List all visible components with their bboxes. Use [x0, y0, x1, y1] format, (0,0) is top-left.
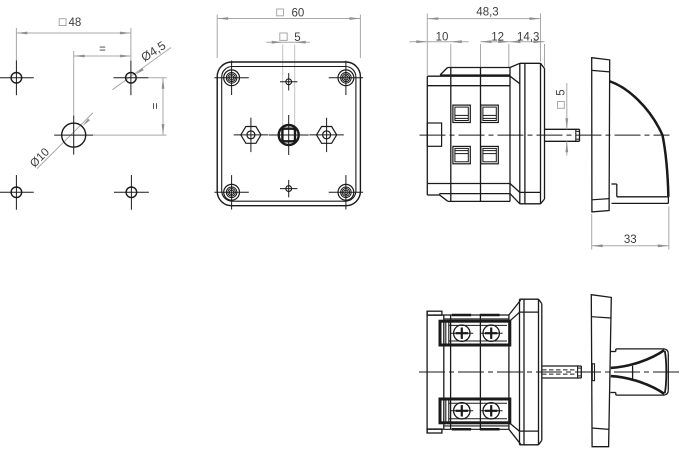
svg-text:=: = [99, 44, 106, 56]
svg-text:=: = [150, 102, 162, 109]
svg-text:5: 5 [555, 89, 567, 95]
svg-text:10: 10 [436, 32, 449, 44]
svg-text:48,3: 48,3 [476, 7, 498, 19]
svg-text:48: 48 [69, 17, 82, 29]
svg-text:Ø10: Ø10 [28, 146, 52, 170]
svg-text:60: 60 [292, 7, 305, 19]
svg-text:33: 33 [624, 234, 637, 246]
svg-text:14,3: 14,3 [517, 32, 539, 44]
svg-text:5: 5 [294, 32, 300, 44]
svg-text:12: 12 [491, 32, 504, 44]
